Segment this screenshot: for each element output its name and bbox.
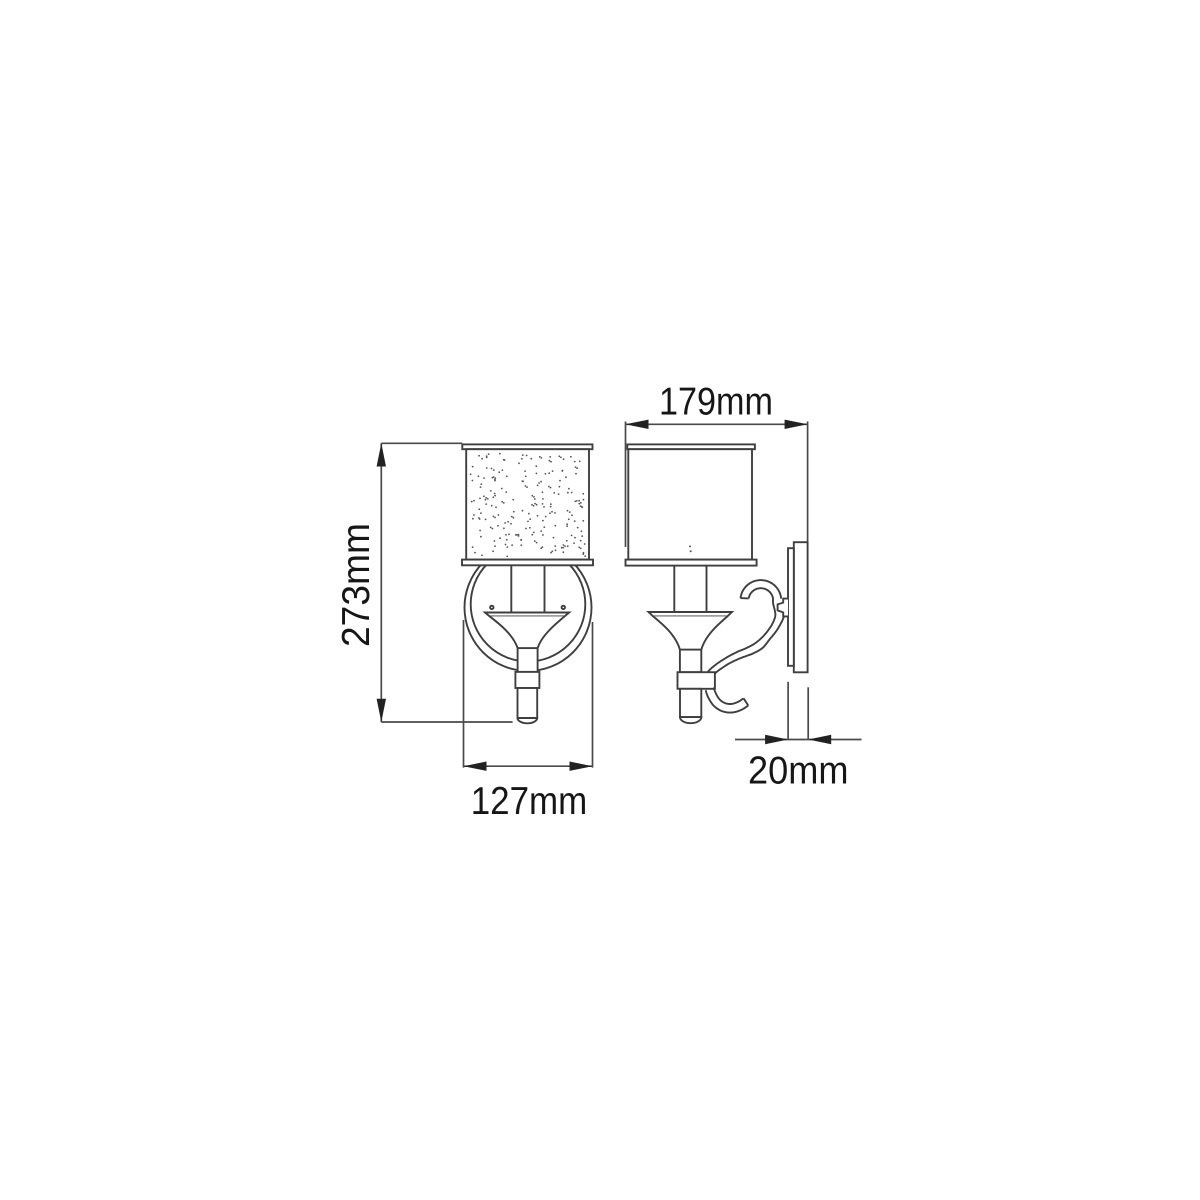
svg-text:273mm: 273mm <box>335 523 378 647</box>
svg-text:20mm: 20mm <box>748 750 849 793</box>
svg-text:179mm: 179mm <box>659 381 773 424</box>
svg-text:127mm: 127mm <box>471 780 588 823</box>
